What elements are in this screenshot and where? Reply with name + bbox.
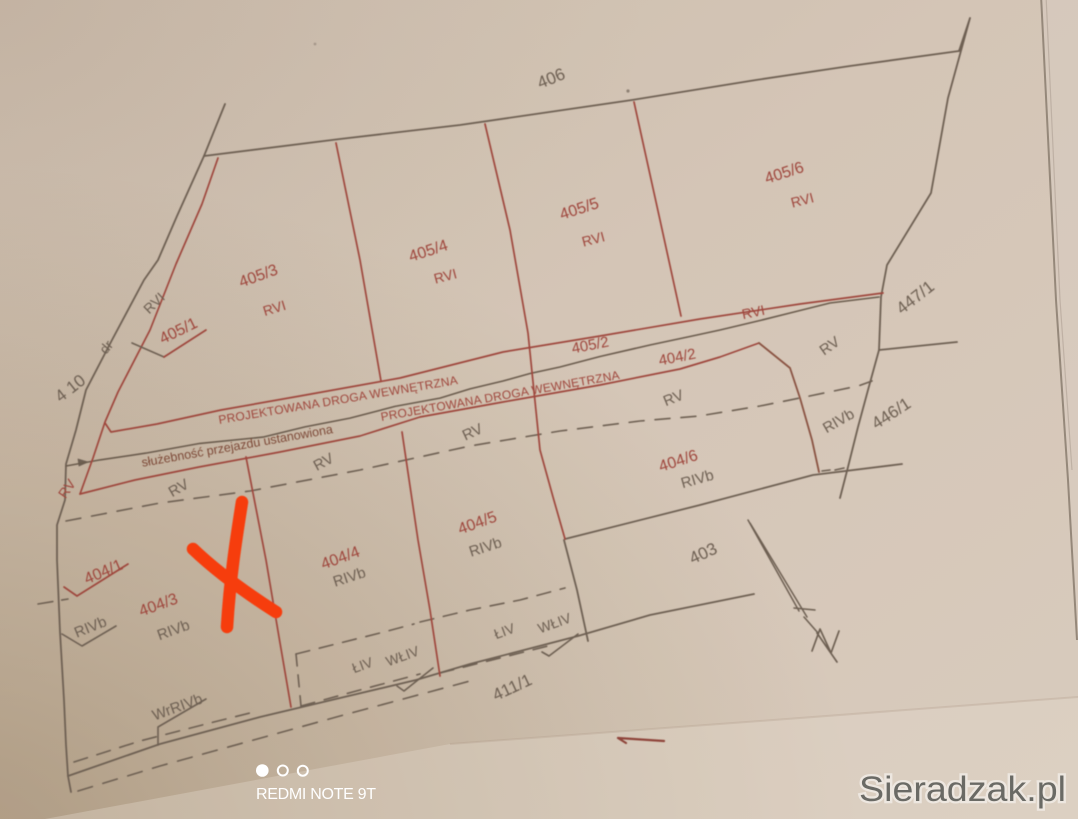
svg-text:Sieradzak.pl: Sieradzak.pl — [859, 770, 1066, 809]
svg-text:REDMI NOTE 9T: REDMI NOTE 9T — [256, 786, 376, 803]
